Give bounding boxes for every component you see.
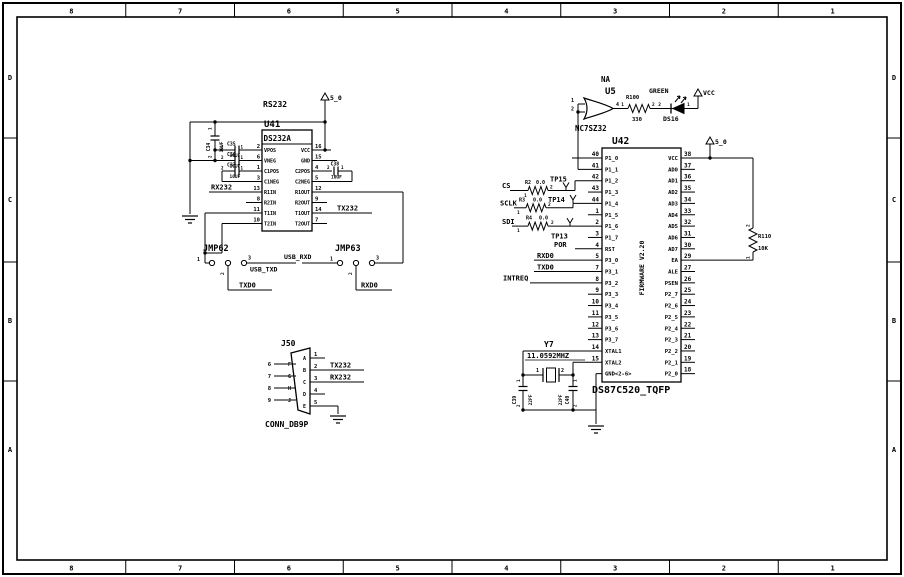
pin-number: 1 <box>746 256 752 259</box>
pin-name: P2_6 <box>665 304 679 310</box>
pin-number: 31 <box>684 230 692 237</box>
junction-dot <box>571 408 574 411</box>
led-color-label: GREEN <box>649 87 669 95</box>
pin-number: 2 <box>561 368 564 374</box>
net-label: USB_RXD <box>284 253 311 261</box>
pin-name: H <box>288 386 291 392</box>
zone-label-bottom: 1 <box>831 565 835 573</box>
pin-number: 24 <box>684 299 692 306</box>
pin-number: 36 <box>684 174 692 181</box>
pin-number: 18 <box>684 367 692 374</box>
refdes: Y7 <box>544 340 554 349</box>
pin-name: VCC <box>301 148 310 154</box>
pin-number: 2 <box>548 202 551 208</box>
jumper-pin <box>225 260 230 265</box>
pin-number: 11 <box>592 310 600 317</box>
pin-number: 2 <box>746 224 752 227</box>
jumper-pin <box>369 260 374 265</box>
pin-name: XTAL2 <box>605 360 622 366</box>
pin-number: 4 <box>595 242 599 249</box>
pin-number: 8 <box>257 197 260 203</box>
pin-number: 2 <box>658 102 661 108</box>
pin-name: R1OUT <box>295 190 310 196</box>
zone-label-bottom: 3 <box>613 565 617 573</box>
refdes: C40 <box>565 396 571 405</box>
pin-number: 15 <box>315 155 322 161</box>
pin-number: 12 <box>315 186 322 192</box>
part-number: DS232A <box>264 134 292 143</box>
pin-name: XTAL1 <box>605 349 622 355</box>
pin-number: 9 <box>315 197 318 203</box>
pin-number: 1 <box>197 257 200 263</box>
power-net-label: 5_0 <box>330 94 342 102</box>
pin-number: 1 <box>517 210 520 216</box>
border-frame: 8877665544332211DDCCBBAA <box>0 0 904 577</box>
junction-dot <box>323 148 326 151</box>
pin-number: 3 <box>248 256 251 262</box>
pin-number: 13 <box>592 333 600 340</box>
pin-name: AD0 <box>668 167 678 173</box>
pin-name: P1_7 <box>605 235 618 241</box>
pin-name: C2NEG <box>295 180 310 186</box>
pin-number: 2 <box>595 219 599 226</box>
pin-number: 8 <box>595 276 599 283</box>
zone-label-top: 6 <box>287 8 291 16</box>
part-number: DS87C520_TQFP <box>592 385 670 396</box>
pin-name: P3_1 <box>605 270 619 276</box>
zone-label-bottom: 2 <box>722 565 726 573</box>
junction-dot <box>188 159 191 162</box>
pin-number: 11 <box>253 207 260 213</box>
pin-number: 13 <box>253 186 260 192</box>
pin-number: 3 <box>314 376 317 382</box>
pin-name: D <box>303 392 306 398</box>
zone-label-right: D <box>892 74 896 82</box>
pin-name: P1_6 <box>605 224 619 230</box>
pin-number: 25 <box>684 287 692 294</box>
pin-name: RST <box>605 247 616 253</box>
net-label: TX232 <box>330 362 351 370</box>
pin-number: 2 <box>348 272 354 275</box>
pin-name: P2_5 <box>665 315 678 321</box>
pin-number: 9 <box>268 398 271 404</box>
refdes: U42 <box>612 136 629 147</box>
net-label: RX232 <box>330 374 351 382</box>
pin-name: P2_2 <box>665 349 678 355</box>
pin-name: R1IN <box>264 190 276 196</box>
pin-name: J <box>288 398 291 404</box>
refdes: C38 <box>331 162 340 168</box>
zone-label-bottom: 8 <box>69 565 73 573</box>
pin-name: P2_3 <box>665 338 678 344</box>
pin-number: 1 <box>536 368 539 374</box>
zone-label-bottom: 4 <box>504 565 508 573</box>
refdes: J50 <box>281 339 296 348</box>
pin-name: VCC <box>668 156 678 162</box>
testpoint-label: TP15 <box>550 176 567 184</box>
refdes: C36 <box>227 152 236 158</box>
pin-name: VNEG <box>264 159 276 165</box>
pin-number: 15 <box>592 355 600 362</box>
value: 330 <box>632 117 642 123</box>
pin-name: AD2 <box>668 190 678 196</box>
schematic-canvas: 8877665544332211DDCCBBAA RS2325_0U41DS23… <box>0 0 904 577</box>
refdes: R2 <box>525 180 531 186</box>
pin-name: GND<2-6> <box>605 372 632 378</box>
pin-number: 42 <box>592 174 600 181</box>
pin-number: 2 <box>314 364 317 370</box>
pin-name: F <box>288 362 291 368</box>
pin-number: 40 <box>592 151 600 158</box>
refdes: R110 <box>758 234 771 240</box>
pin-name: P3_0 <box>605 258 618 264</box>
zone-label-top: 5 <box>396 8 400 16</box>
zone-label-left: D <box>8 74 12 82</box>
pin-name: A <box>303 356 306 362</box>
net-label: RXD0 <box>361 282 378 290</box>
pin-name: EA <box>671 258 678 264</box>
pin-name: P3_7 <box>605 338 618 344</box>
part-number: NC7SZ32 <box>575 124 607 133</box>
pin-name: P2_0 <box>665 372 678 378</box>
junction-dot <box>323 120 326 123</box>
pin-name: R2OUT <box>295 201 310 207</box>
net-label: RXD0 <box>537 252 554 260</box>
pin-number: 7 <box>315 218 318 224</box>
net-label: CS <box>502 182 510 190</box>
pin-name: P3_6 <box>605 326 619 332</box>
pin-number: 26 <box>684 276 692 283</box>
paper <box>0 0 904 577</box>
pin-number: 1 <box>517 228 520 234</box>
pin-number: 1 <box>687 102 690 108</box>
value: 22PF <box>528 394 534 405</box>
pin-name: ALE <box>668 270 678 276</box>
pin-number: 2 <box>551 220 554 226</box>
pin-number: 3 <box>376 256 379 262</box>
pin-number: 5 <box>595 253 599 260</box>
pin-name: P3_5 <box>605 315 618 321</box>
pin-number: 10 <box>253 218 260 224</box>
pin-name: R2IN <box>264 201 276 207</box>
pin-number: 20 <box>684 344 692 351</box>
pin-name: P2_1 <box>665 360 679 366</box>
net-label: SDI <box>502 218 515 226</box>
net-label: INTREQ <box>503 275 528 283</box>
pin-number: 3 <box>257 176 260 182</box>
pin-number: 2 <box>220 272 226 275</box>
dni-tag: NA <box>601 75 611 84</box>
net-label: USB_TXD <box>250 266 277 274</box>
pin-name: P1_0 <box>605 156 618 162</box>
pin-number: 43 <box>592 185 600 192</box>
refdes: JMP62 <box>203 244 229 254</box>
power-net-label: 5_0 <box>715 138 727 146</box>
zone-label-right: C <box>892 196 896 204</box>
pin-number: 34 <box>684 196 692 203</box>
refdes: R4 <box>526 216 532 222</box>
pin-number: 10 <box>592 299 600 306</box>
refdes: DS16 <box>663 115 679 123</box>
net-label: RX232 <box>211 184 232 192</box>
zone-label-bottom: 5 <box>396 565 400 573</box>
pin-number: 7 <box>595 265 599 272</box>
refdes: U5 <box>605 87 616 97</box>
pin-number: 16 <box>315 144 322 150</box>
zone-label-right: B <box>892 317 896 325</box>
zone-label-top: 2 <box>722 8 726 16</box>
pin-number: 2 <box>652 102 655 108</box>
junction-dot <box>213 120 216 123</box>
power-net-label: VCC <box>703 89 715 97</box>
pin-number: 38 <box>684 151 692 158</box>
pin-name: AD4 <box>668 213 679 219</box>
zone-label-bottom: 7 <box>178 565 182 573</box>
pin-number: 30 <box>684 242 692 249</box>
pin-name: C1POS <box>264 169 279 175</box>
net-label: TX232 <box>337 205 358 213</box>
section-title: RS232 <box>263 100 287 109</box>
pin-number: 22 <box>684 321 692 328</box>
junction-dot <box>521 408 524 411</box>
refdes: C34 <box>206 143 212 152</box>
pin-name: P1_5 <box>605 213 618 219</box>
pin-number: 2 <box>257 144 260 150</box>
pin-number: 21 <box>684 333 692 340</box>
net-label: TXD0 <box>239 282 256 290</box>
zone-label-left: B <box>8 317 12 325</box>
pin-number: 3 <box>595 230 599 237</box>
part-number: CONN_DB9P <box>265 420 309 429</box>
jumper-pin <box>209 260 214 265</box>
pin-name: C <box>303 380 306 386</box>
pin-name: E <box>303 404 306 410</box>
pin-number: 7 <box>268 374 271 380</box>
refdes: JMP63 <box>335 244 361 254</box>
pin-number: 41 <box>592 162 600 169</box>
pin-number: 5 <box>315 176 318 182</box>
pin-number: 8 <box>268 386 271 392</box>
jumper-pin <box>337 260 342 265</box>
pin-number: 4 <box>616 102 619 108</box>
net-label: SCLK <box>500 200 518 208</box>
firmware-label: FIRMWARE V2.20 <box>638 241 646 296</box>
value: 10UF <box>331 175 342 181</box>
schematic-page: 8877665544332211DDCCBBAA RS2325_0U41DS23… <box>0 0 904 577</box>
refdes: R100 <box>626 95 639 101</box>
pin-name: T1IN <box>264 211 276 217</box>
pin-name: VPOS <box>264 148 276 154</box>
refdes: U41 <box>264 120 280 130</box>
zone-label-bottom: 6 <box>287 565 291 573</box>
pin-number: 1 <box>621 102 624 108</box>
value: 0.0 <box>536 180 545 186</box>
led-arrow-icon <box>680 96 681 99</box>
jumper-pin <box>353 260 358 265</box>
pin-name: T2IN <box>264 222 276 228</box>
pin-name: T2OUT <box>295 222 310 228</box>
pin-name: P1_4 <box>605 201 619 207</box>
pin-number: 1 <box>571 98 574 104</box>
pin-name: AD6 <box>668 235 679 241</box>
zone-label-top: 1 <box>831 8 835 16</box>
zone-label-top: 3 <box>613 8 617 16</box>
junction-dot <box>213 148 216 151</box>
pin-name: GND <box>301 159 310 165</box>
refdes: C39 <box>512 396 518 405</box>
pin-name: P1_2 <box>605 179 618 185</box>
testpoint-label: TP13 <box>551 233 568 241</box>
pin-number: 27 <box>684 265 692 272</box>
pin-name: P3_3 <box>605 292 618 298</box>
value: 10K <box>758 246 769 252</box>
pin-number: 14 <box>315 207 322 213</box>
pin-name: P2_4 <box>665 326 679 332</box>
pin-name: AD1 <box>668 179 679 185</box>
pin-number: 32 <box>684 219 692 226</box>
pin-number: 1 <box>330 257 333 263</box>
pin-name: P1_3 <box>605 190 618 196</box>
pin-name: P3_2 <box>605 281 618 287</box>
value: 10UF <box>230 174 241 180</box>
pin-name: G <box>288 374 291 380</box>
pin-number: 14 <box>592 344 600 351</box>
refdes: C37 <box>227 163 236 169</box>
pin-number: 29 <box>684 253 692 260</box>
pin-number: 44 <box>592 196 600 203</box>
led-arrow-icon <box>686 97 687 100</box>
pin-number: 37 <box>684 162 692 169</box>
pin-name: AD5 <box>668 224 678 230</box>
pin-name: P1_1 <box>605 167 619 173</box>
junction-dot <box>213 159 216 162</box>
pin-number: 2 <box>550 185 553 191</box>
pin-name: P3_4 <box>605 304 619 310</box>
net-label: POR <box>554 241 567 249</box>
pin-name: T1OUT <box>295 211 310 217</box>
pin-name: AD3 <box>668 201 678 207</box>
value: 0.0 <box>533 198 542 204</box>
pin-number: 12 <box>592 321 600 328</box>
zone-label-top: 7 <box>178 8 182 16</box>
refdes: R3 <box>519 198 525 204</box>
zone-label-left: C <box>8 196 12 204</box>
pin-number: 5 <box>314 400 317 406</box>
pin-name: C1NEG <box>264 180 279 186</box>
jumper-pin <box>241 260 246 265</box>
zone-label-top: 4 <box>504 8 508 16</box>
pin-name: AD7 <box>668 247 678 253</box>
pin-name: PSEN <box>665 281 678 287</box>
pin-name: C2POS <box>295 169 310 175</box>
pin-name: B <box>303 368 306 374</box>
net-label: TXD0 <box>537 263 554 271</box>
value: 22PF <box>558 394 564 405</box>
pin-number: 19 <box>684 355 692 362</box>
pin-number: 9 <box>595 287 599 294</box>
value: 11.0592MHZ <box>527 352 569 360</box>
pin-number: 1 <box>595 208 599 215</box>
pin-number: 33 <box>684 208 692 215</box>
value: 0.0 <box>539 216 548 222</box>
refdes: C35 <box>227 142 236 148</box>
pin-number: 23 <box>684 310 692 317</box>
pin-name: P2_7 <box>665 292 678 298</box>
pin-number: 35 <box>684 185 692 192</box>
pin-number: 2 <box>571 107 574 113</box>
zone-label-top: 8 <box>69 8 73 16</box>
